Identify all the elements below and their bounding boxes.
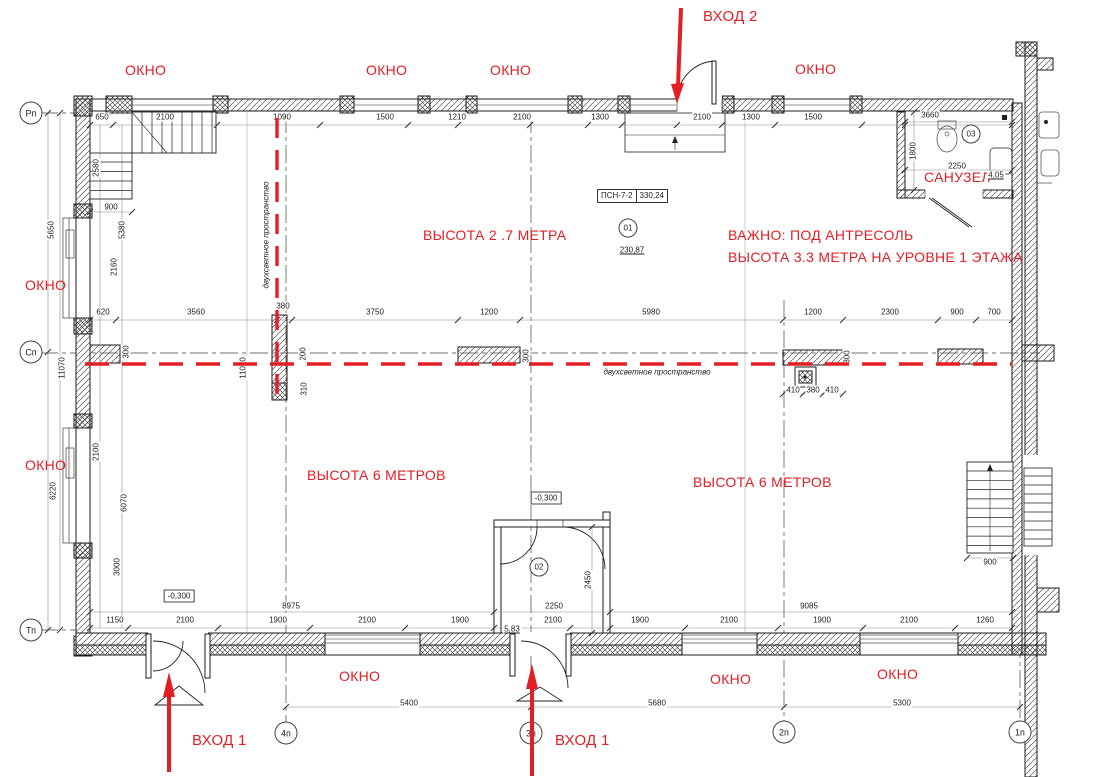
floorplan-canvas: ВХОД 2ОКНООКНООКНООКНООКНООКНОВЫСОТА 2 .… <box>0 0 1115 777</box>
room-code: ПСН-7-2 <box>597 189 637 203</box>
room-area-value: 330,24 <box>637 189 668 203</box>
floorplan-linework <box>0 0 1115 777</box>
room-area-tag: ПСН-7-2 330,24 <box>597 189 668 203</box>
